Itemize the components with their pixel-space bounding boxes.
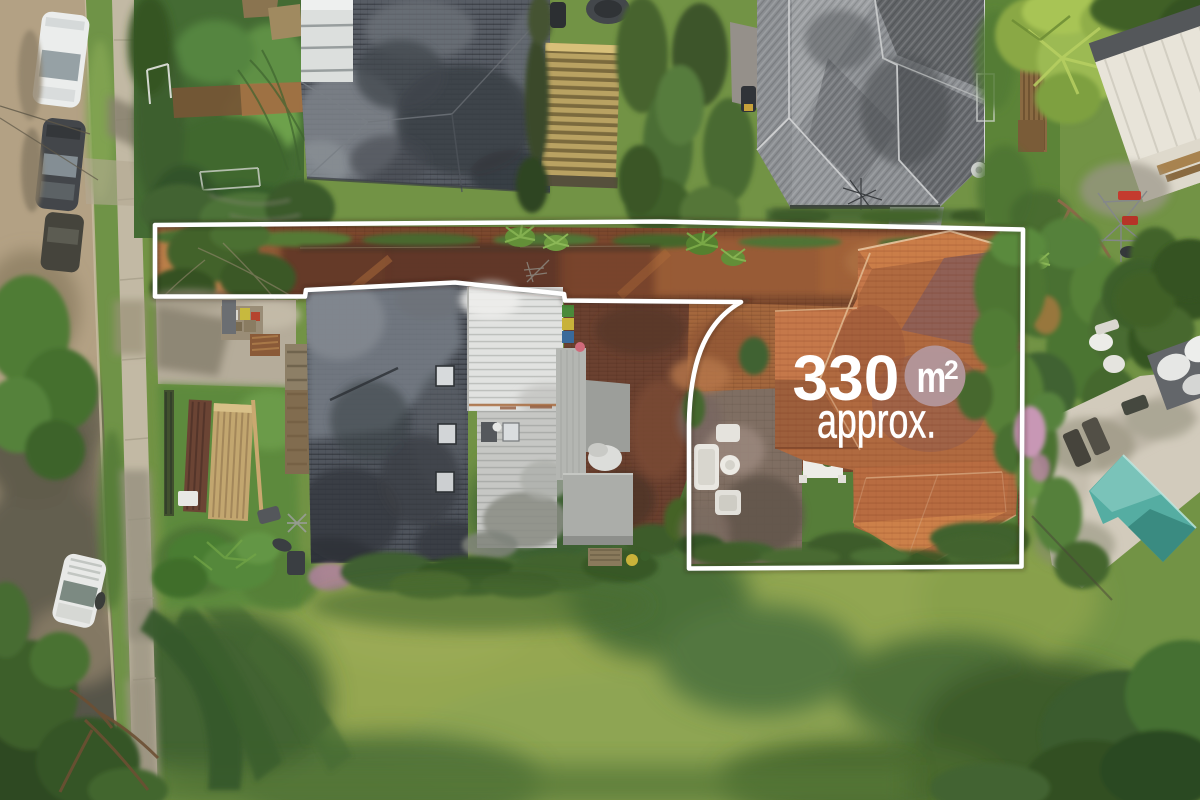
svg-text:2: 2 [944, 355, 959, 385]
svg-text:approx.: approx. [817, 394, 936, 449]
